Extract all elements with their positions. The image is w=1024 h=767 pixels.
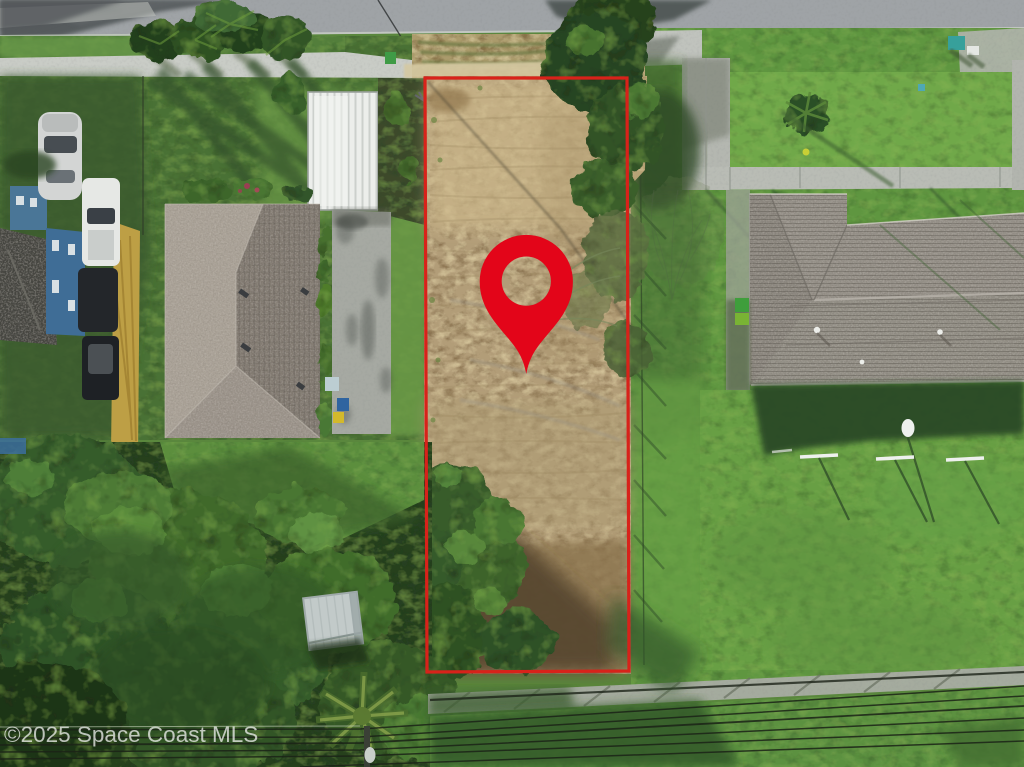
svg-text:©2025 Space Coast MLS: ©2025 Space Coast MLS <box>4 722 258 747</box>
